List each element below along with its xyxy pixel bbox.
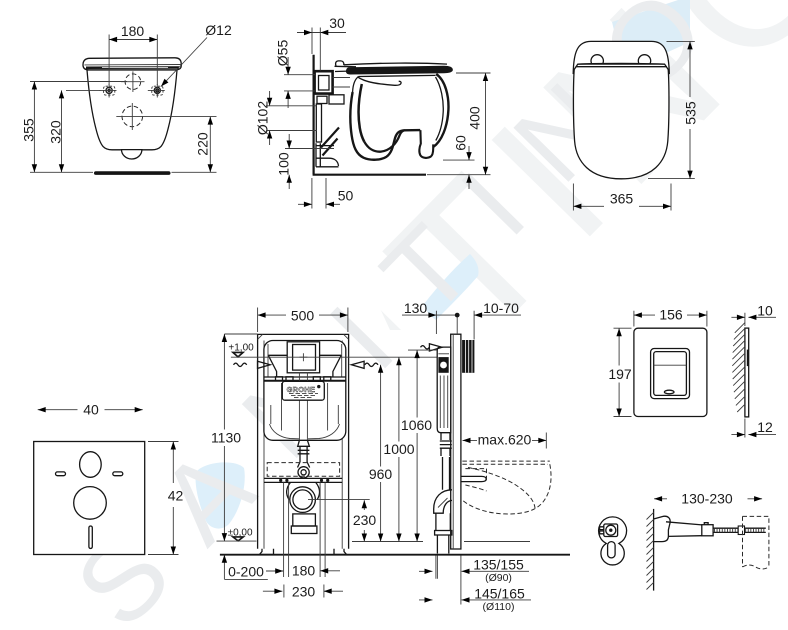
svg-text:max.620: max.620 (478, 432, 532, 448)
svg-text:135/155: 135/155 (473, 556, 524, 572)
svg-text:50: 50 (338, 188, 354, 204)
svg-text:180: 180 (292, 563, 316, 579)
svg-text:(Ø110): (Ø110) (483, 601, 515, 613)
svg-text:500: 500 (291, 308, 315, 324)
svg-text:60: 60 (453, 135, 469, 151)
svg-text:100: 100 (276, 152, 292, 176)
svg-text:400: 400 (467, 106, 483, 130)
svg-text:12: 12 (757, 419, 773, 435)
svg-text:130: 130 (404, 300, 428, 316)
svg-text:Ø12: Ø12 (205, 22, 232, 38)
svg-text:30: 30 (329, 15, 345, 31)
svg-text:GROHE: GROHE (287, 385, 316, 394)
svg-text:1130: 1130 (211, 429, 241, 445)
svg-text:42: 42 (168, 488, 184, 504)
svg-text:156: 156 (659, 306, 683, 322)
svg-text:220: 220 (195, 132, 211, 156)
svg-text:40: 40 (83, 402, 99, 418)
svg-text:960: 960 (369, 466, 393, 482)
svg-text:1060: 1060 (401, 417, 432, 433)
svg-text:230: 230 (292, 583, 316, 599)
svg-text:10-70: 10-70 (483, 300, 519, 316)
svg-text:1000: 1000 (383, 441, 414, 457)
svg-text:230: 230 (353, 512, 377, 528)
svg-text:145/165: 145/165 (474, 585, 525, 601)
svg-text:365: 365 (610, 191, 634, 207)
svg-text:(Ø90): (Ø90) (485, 572, 512, 584)
svg-text:197: 197 (608, 366, 632, 382)
svg-text:130-230: 130-230 (681, 490, 733, 506)
svg-text:535: 535 (683, 101, 699, 125)
svg-text:180: 180 (121, 23, 145, 39)
svg-text:10: 10 (757, 302, 773, 318)
svg-text:0-200: 0-200 (228, 563, 264, 579)
